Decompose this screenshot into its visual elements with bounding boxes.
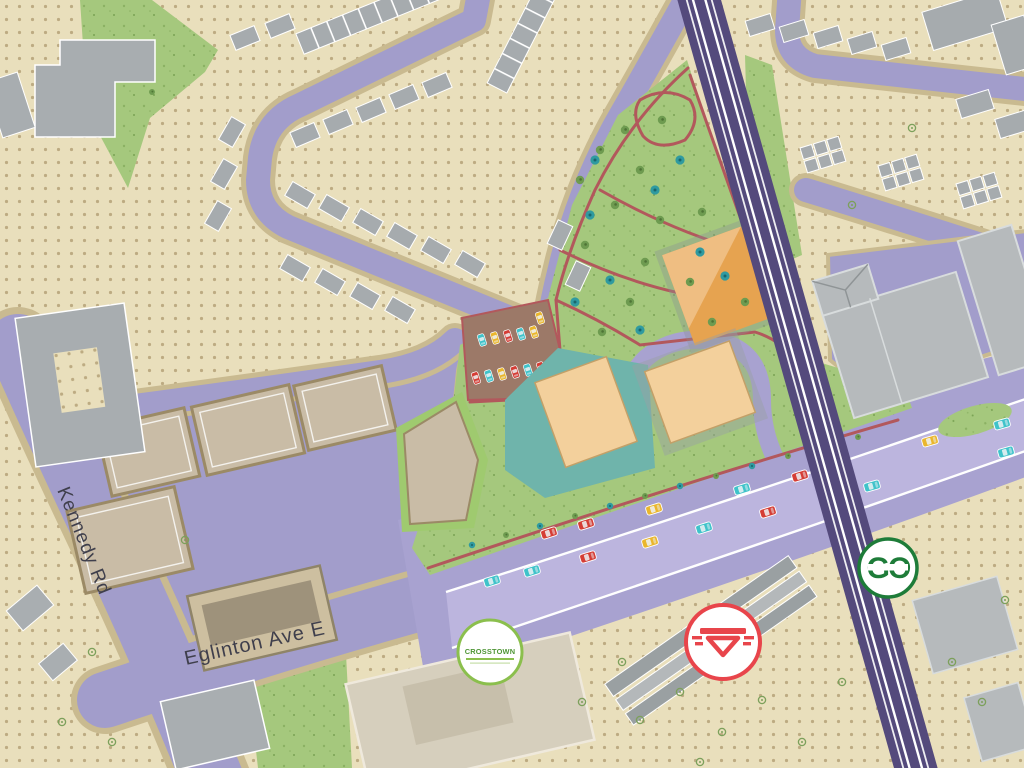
crosstown-logo-text: CROSSTOWN — [465, 647, 516, 656]
go-transit-badge[interactable]: GO — [859, 539, 917, 597]
ttc-roundel-badge[interactable] — [686, 605, 760, 679]
crosstown-lrt-badge[interactable]: CROSSTOWN — [458, 620, 522, 684]
map-canvas: Kennedy Rd Eglinton Ave E GO CROSSTOWN — [0, 0, 1024, 768]
school-building-2 — [15, 303, 145, 467]
crosstown-logo-underline — [466, 658, 514, 660]
go-logo-stripe — [868, 564, 908, 571]
illustrated-map: Kennedy Rd Eglinton Ave E GO CROSSTOWN — [0, 0, 1024, 768]
